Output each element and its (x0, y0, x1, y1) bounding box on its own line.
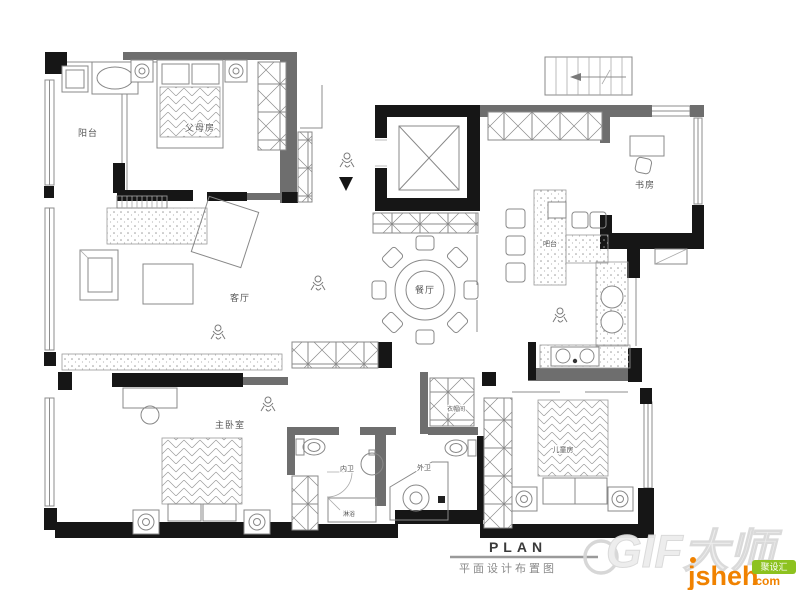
desk (630, 136, 664, 156)
title-block: PLAN 平面设计布置图 (450, 539, 598, 575)
person-figure (553, 308, 567, 322)
tv-cabinet (107, 208, 207, 244)
nightstand (131, 60, 153, 82)
nightstand (244, 510, 270, 534)
parents-room (131, 60, 247, 148)
entry-arrow (339, 177, 353, 191)
floor-plan-image: 阳台 父母房 书房 吧台 餐厅 客厅 主卧室 内卫 淋浴 外卫 衣帽间 儿童房 … (0, 0, 800, 590)
nightstand (225, 60, 247, 82)
shower (328, 498, 376, 522)
hallway-cabinet (292, 342, 378, 368)
floor-drain (438, 496, 445, 503)
living-room (62, 196, 325, 370)
room-label-cloakroom: 衣帽间 (447, 405, 465, 413)
site-logo: jsheh .com 聚设汇 (687, 557, 796, 590)
low-cabinet (655, 249, 687, 264)
stove (551, 347, 599, 366)
room-label-inner-bath: 内卫 (340, 464, 354, 473)
room-label-master: 主卧室 (215, 419, 245, 430)
door-swing (327, 472, 352, 497)
room-label-parents: 父母房 (185, 122, 215, 133)
logo-tld: .com (752, 574, 780, 588)
bar-stool (506, 236, 525, 255)
plan-title: PLAN (489, 539, 547, 555)
stool (141, 406, 159, 424)
person-figure (261, 397, 275, 411)
stairs-direction-arrow (570, 73, 581, 81)
dressing-table (123, 388, 177, 408)
room-label-living: 客厅 (230, 292, 250, 303)
outer-bathroom (390, 440, 476, 520)
bar-counter-arm (566, 235, 608, 263)
bar-stool (506, 263, 525, 282)
bar-stool (506, 209, 525, 228)
master-closet (292, 476, 318, 530)
toilet (296, 439, 325, 455)
bay-window-seat (62, 354, 282, 370)
kids-wardrobe (484, 398, 512, 528)
sofa (80, 250, 118, 300)
kitchen-sink (601, 286, 623, 308)
person-figure (211, 325, 225, 339)
plan-subtitle: 平面设计布置图 (459, 562, 557, 575)
kids-room (512, 400, 633, 511)
kitchen-sink (601, 311, 623, 333)
bar-area (506, 190, 608, 285)
bar-chair (572, 212, 588, 228)
toilet (445, 440, 476, 456)
elevator-shaft (375, 126, 459, 190)
room-label-outer-bath: 外卫 (417, 463, 431, 472)
logo-badge-text: 聚设汇 (760, 562, 787, 572)
entry-shoe-cabinet (373, 213, 478, 233)
person-figure (311, 276, 325, 290)
staircase (545, 57, 632, 95)
parents-wardrobe (258, 62, 286, 150)
master-bed (162, 438, 242, 504)
hall-top-cabinet (488, 112, 602, 140)
person-figure (340, 153, 354, 167)
room-label-balcony: 阳台 (78, 127, 98, 138)
room-label-study: 书房 (635, 179, 655, 190)
entry-cabinet (298, 132, 312, 202)
room-label-dining: 餐厅 (415, 284, 435, 295)
desk-chair (634, 157, 652, 175)
room-label-kids: 儿童房 (553, 445, 574, 454)
room-label-shower: 淋浴 (343, 510, 355, 518)
nightstand (133, 510, 159, 534)
cloakroom-wardrobe (430, 378, 474, 426)
coffee-table (143, 264, 193, 304)
balcony-room (62, 62, 138, 94)
room-label-bar: 吧台 (543, 239, 557, 248)
nightstand (608, 487, 633, 511)
wash-basin (403, 485, 429, 511)
nightstand (512, 487, 537, 511)
master-bedroom (123, 388, 275, 534)
entry (339, 153, 354, 191)
kids-bed (538, 400, 608, 476)
logo-name: jsheh (687, 561, 759, 590)
floor-plan-svg: 阳台 父母房 书房 吧台 餐厅 客厅 主卧室 内卫 淋浴 外卫 衣帽间 儿童房 … (0, 0, 800, 590)
